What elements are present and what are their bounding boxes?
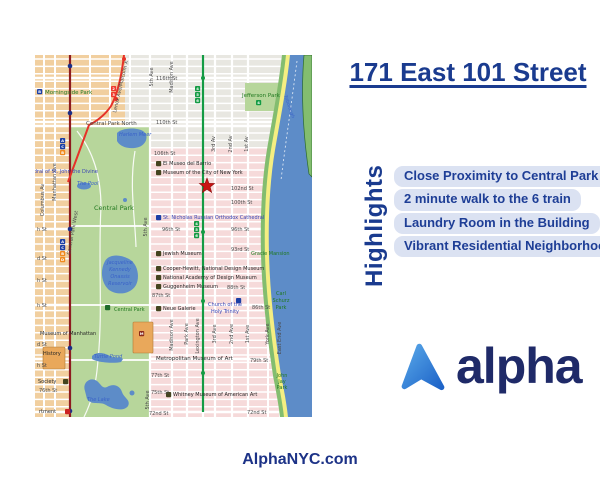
map-label: h St — [37, 278, 47, 284]
subway-badge-label: A — [61, 138, 64, 143]
map-label: The Pool — [77, 181, 99, 187]
subway-station — [201, 230, 205, 234]
subway-station — [68, 111, 73, 116]
map-label: 110th St — [156, 120, 177, 126]
subway-station — [68, 346, 73, 351]
alpha-mountain-icon — [396, 340, 450, 392]
highlight-pill: 2 minute walk to the 6 train — [394, 189, 581, 210]
map-label: 75th St — [151, 390, 169, 396]
map-label: York Ave — [265, 323, 271, 345]
map-label: 79th St — [250, 358, 268, 364]
map-label: Kennedy — [109, 267, 132, 273]
subway-badge-label: 6 — [196, 98, 199, 103]
map-label: 86th St — [252, 305, 270, 311]
subway-badge — [105, 305, 110, 310]
map-label: 3rd Av — [211, 136, 217, 152]
subway-station — [201, 76, 205, 80]
map-label: Onassis — [110, 274, 130, 280]
map-label: 77th St — [151, 373, 169, 379]
subway-badge — [156, 215, 161, 220]
alpha-wordmark: alpha — [456, 341, 582, 391]
map-label: 93rd St — [231, 247, 249, 253]
highlight-pill: Laundry Room in the Building — [394, 213, 600, 234]
map-label: 3rd Ave — [212, 324, 218, 343]
map-label: Madison Ave — [169, 61, 175, 93]
subway-badge — [156, 251, 161, 256]
map-label: 1st Ave — [245, 325, 251, 344]
map-label: 76th St — [39, 388, 57, 394]
subway-badge — [156, 266, 161, 271]
map-image: 456456423BACBACBDM116th St110th St106th … — [35, 55, 312, 417]
subway-badge-label: A — [61, 239, 64, 244]
subway-badge — [156, 275, 161, 280]
subway-badge-label: 5 — [196, 92, 199, 97]
highlight-pill: Vibrant Residential Neighborhood — [394, 236, 600, 257]
map-label: Park — [277, 385, 288, 391]
map-label: Cathedral of St. John the Divine — [35, 169, 98, 175]
small-pond — [130, 391, 135, 396]
map-label: Madison Ave — [169, 319, 175, 351]
map-label: 102nd St — [231, 186, 254, 192]
subway-badge-label: B — [38, 89, 41, 94]
map-label: Central Park North — [86, 121, 137, 127]
map-label: Central Park — [94, 204, 134, 212]
map-label: Whitney Museum of American Art — [173, 392, 257, 398]
subway-badge — [156, 284, 161, 289]
map-label: Lexington Ave — [195, 318, 201, 353]
map-label: Columbus Av — [40, 184, 46, 217]
map-label: Park — [276, 305, 287, 311]
map-label: Museum of Manhattan — [40, 331, 96, 337]
map-label: Carl — [276, 291, 286, 297]
subway-station — [68, 64, 73, 69]
map-label: 5th Ave — [145, 390, 151, 409]
map-label: 2nd Av — [228, 135, 234, 152]
map-label: 96th St — [231, 227, 249, 233]
subway-badge — [156, 306, 161, 311]
page: 456456423BACBACBDM116th St110th St106th … — [0, 0, 600, 503]
map-label: St. Nicholas Russian Orthodox Cathedral — [163, 215, 264, 221]
map-label: Jefferson Park — [241, 93, 281, 99]
map-label: h St — [37, 363, 47, 369]
map-label: Turtle Pond — [94, 354, 123, 360]
subway-badge-label: C — [61, 144, 64, 149]
subway-badge-label: 4 — [196, 86, 199, 91]
met-museum-building — [133, 322, 153, 353]
website-url: AlphaNYC.com — [0, 451, 600, 469]
map-label: 87th St — [152, 293, 170, 299]
map-label: Jacqueline — [106, 260, 133, 266]
subway-badge-label: 4 — [195, 221, 198, 226]
subway-badge-label: 4 — [257, 100, 260, 105]
map-label: East End Ave — [277, 322, 283, 355]
map-label: Church of the — [208, 302, 242, 308]
map-label: History — [43, 351, 61, 357]
map-label: Jewish Museum — [162, 251, 202, 257]
subway-station — [201, 299, 205, 303]
subway-badge-label: 5 — [195, 227, 198, 232]
map-label: 5th Ave — [149, 67, 155, 86]
alpha-logo: alpha — [396, 340, 582, 392]
map-label: 72nd St — [247, 410, 266, 416]
property-address: 171 East 101 Street — [349, 57, 586, 87]
map-label: Guggenheim Museum — [163, 284, 218, 290]
highlights-list: Close Proximity to Central Park2 minute … — [394, 166, 600, 259]
map-label: Cooper-Hewitt, National Design Museum — [163, 266, 264, 272]
map-label: rtment — [39, 409, 56, 415]
subway-badge — [65, 409, 70, 414]
map-label: Central Park — [114, 307, 145, 313]
conservatory-pond — [123, 198, 127, 202]
map-label: The Lake — [87, 397, 110, 403]
highlights-heading: Highlights — [361, 165, 389, 287]
map-label: h St — [37, 303, 47, 309]
highlight-pill: Close Proximity to Central Park — [394, 166, 600, 187]
subway-badge-label: B — [61, 150, 64, 155]
map-label: Holy Trinity — [211, 309, 239, 315]
map-label: 1st Av — [244, 136, 250, 151]
subway-badge-label: 6 — [195, 233, 198, 238]
map-label: 88th St — [227, 285, 245, 291]
map-label: 106th St — [154, 151, 175, 157]
subway-station — [201, 371, 205, 375]
map-label: Reservoir — [108, 281, 133, 287]
map-label: Neue Galerie — [163, 306, 196, 312]
map-label: National Academy of Design Museum — [163, 275, 257, 281]
subway-badge-label: C — [61, 245, 64, 250]
subway-badge-label: 2 — [112, 86, 115, 91]
map-label: 2nd Ave — [229, 324, 235, 344]
map-label: Museum of the City of New York — [163, 170, 243, 176]
map-label: El Museo del Barrio — [163, 161, 211, 167]
neighborhood-map: 456456423BACBACBDM116th St110th St106th … — [35, 55, 312, 417]
map-label: Morningside Park — [45, 90, 93, 96]
map-label: Gracie Mansion — [251, 251, 290, 257]
map-label: 96th St — [162, 227, 180, 233]
map-label: 72nd St — [149, 411, 168, 417]
map-label: h St — [37, 227, 47, 233]
map-label: d St — [37, 256, 47, 262]
map-label: Park Ave — [184, 323, 190, 345]
subway-badge — [156, 170, 161, 175]
map-label: Metropolitan Museum of Art — [156, 356, 234, 362]
subway-badge-label: M — [140, 331, 144, 336]
subway-badge — [156, 161, 161, 166]
map-label: Society — [38, 379, 56, 385]
map-label: d St — [37, 342, 47, 348]
subway-badge-label: B — [61, 251, 64, 256]
subway-badge — [63, 379, 68, 384]
map-label: Harlem Meer — [119, 132, 152, 138]
subway-badge-label: D — [61, 257, 64, 262]
map-label: 100th St — [231, 200, 252, 206]
map-label: Schurz — [273, 298, 290, 304]
map-label: 5th Ave — [143, 217, 149, 236]
page-title: 171 East 101 Street — [340, 57, 596, 88]
